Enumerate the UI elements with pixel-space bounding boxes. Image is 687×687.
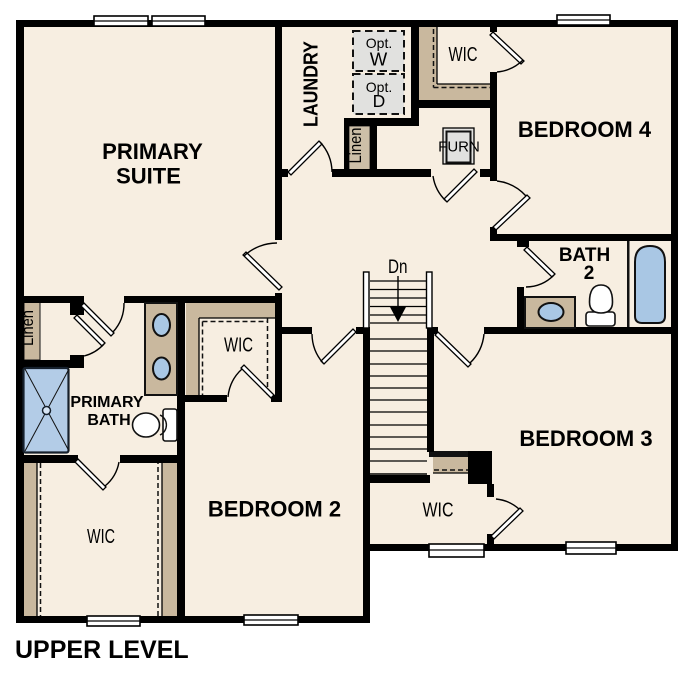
svg-text:PRIMARY: PRIMARY — [70, 394, 144, 411]
svg-text:PRIMARY: PRIMARY — [102, 139, 203, 164]
svg-text:W: W — [370, 49, 388, 70]
svg-text:WIC: WIC — [423, 500, 454, 522]
svg-text:BEDROOM 3: BEDROOM 3 — [519, 426, 652, 451]
svg-text:WIC: WIC — [449, 44, 478, 66]
svg-text:BEDROOM 4: BEDROOM 4 — [518, 117, 652, 142]
svg-text:SUITE: SUITE — [116, 164, 181, 189]
svg-text:FURN: FURN — [438, 139, 480, 156]
svg-text:2: 2 — [584, 263, 595, 284]
svg-text:WIC: WIC — [87, 526, 115, 548]
svg-text:D: D — [373, 91, 386, 111]
svg-text:LAUNDRY: LAUNDRY — [301, 40, 323, 127]
svg-text:BEDROOM 2: BEDROOM 2 — [208, 497, 341, 522]
svg-text:BATH: BATH — [87, 412, 130, 429]
svg-text:Dn: Dn — [388, 257, 408, 278]
svg-text:WIC: WIC — [224, 335, 253, 357]
svg-text:UPPER LEVEL: UPPER LEVEL — [15, 636, 189, 664]
